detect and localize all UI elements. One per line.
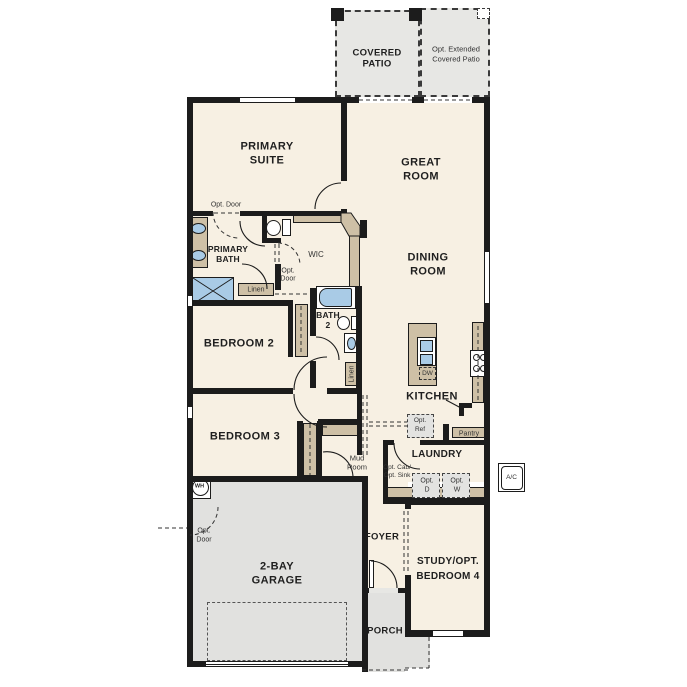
opt-patio-opening bbox=[424, 97, 472, 103]
opt-door-label: Opt. bbox=[197, 528, 210, 535]
window bbox=[240, 97, 295, 103]
window bbox=[433, 630, 463, 637]
dining-room-label: ROOM bbox=[410, 267, 446, 278]
wall bbox=[187, 97, 193, 667]
opt-door-label: Opt. Door bbox=[211, 202, 241, 209]
opt-dryer-label: D bbox=[424, 487, 429, 494]
covered-patio-label: PATIO bbox=[362, 59, 391, 69]
wall bbox=[187, 476, 368, 482]
tub-fixture bbox=[319, 288, 352, 307]
mud-room-label: Mud bbox=[350, 454, 365, 462]
garage-label: 2-BAY bbox=[260, 562, 294, 573]
foyer-label: FOYER bbox=[365, 532, 399, 542]
opt-wall-opening bbox=[405, 509, 411, 575]
wh-label: WH bbox=[195, 484, 204, 490]
primary-bath-label: BATH bbox=[216, 255, 240, 264]
great-room-label: ROOM bbox=[403, 172, 439, 183]
bedroom3-closet bbox=[303, 423, 317, 476]
bedroom3-label: BEDROOM 3 bbox=[210, 432, 280, 443]
patio-post bbox=[409, 8, 422, 21]
garage-door-line bbox=[206, 664, 348, 665]
kitchen-label: KITCHEN bbox=[406, 392, 458, 403]
window bbox=[187, 296, 193, 306]
study-label: STUDY/OPT. bbox=[417, 557, 479, 567]
stoop-area bbox=[405, 637, 430, 668]
dining-room-label: DINING bbox=[408, 253, 449, 264]
opt-extended-patio-label: Covered Patio bbox=[432, 55, 480, 63]
dishwasher-label: DW bbox=[422, 370, 433, 377]
sink-fixture bbox=[347, 337, 356, 350]
bath2-label: 2 bbox=[326, 321, 331, 330]
toilet-fixture bbox=[266, 220, 281, 236]
wall bbox=[317, 421, 322, 476]
wall bbox=[459, 403, 464, 416]
opt-ref-label: Opt. bbox=[414, 418, 426, 425]
wall bbox=[187, 211, 347, 216]
linen-label: Linen bbox=[247, 287, 264, 294]
wic-label: WIC bbox=[308, 251, 324, 259]
sink-fixture bbox=[191, 223, 206, 234]
opt-door-label: Door bbox=[196, 537, 211, 544]
patio-corner-notch bbox=[477, 8, 490, 19]
front-door-opening bbox=[369, 588, 398, 593]
burner bbox=[473, 365, 480, 372]
door-opening bbox=[293, 388, 327, 394]
pantry-label: Pantry bbox=[459, 431, 479, 438]
door-opening bbox=[310, 336, 316, 361]
wall bbox=[187, 388, 293, 394]
covered-patio-label: COVERED bbox=[352, 48, 401, 58]
great-room-label: GREAT bbox=[401, 158, 441, 169]
toilet-tank bbox=[282, 219, 291, 236]
wall bbox=[187, 300, 290, 306]
wall bbox=[356, 286, 362, 392]
bath2-label: BATH bbox=[316, 311, 340, 320]
floor-plan: COVERED PATIO Opt. Extended Covered Pati… bbox=[0, 0, 687, 687]
study-label: BEDROOM 4 bbox=[416, 572, 479, 582]
door-opening bbox=[341, 181, 347, 209]
opt-door-label: Door bbox=[280, 276, 295, 283]
wall bbox=[360, 220, 367, 238]
ac-label: A/C bbox=[506, 474, 517, 481]
patio-post bbox=[331, 8, 344, 21]
garage-label: GARAGE bbox=[252, 576, 303, 587]
wall bbox=[318, 419, 362, 424]
wall bbox=[267, 238, 281, 243]
mud-room-label: Room bbox=[347, 463, 367, 471]
wic-wall bbox=[349, 234, 360, 292]
opt-washer-label: Opt. bbox=[450, 478, 463, 485]
opt-extended-patio-label: Opt. Extended bbox=[432, 45, 480, 53]
wall bbox=[405, 500, 490, 505]
linen-label: Linen bbox=[348, 365, 355, 382]
sink-basin bbox=[420, 354, 433, 365]
primary-suite-label: SUITE bbox=[250, 156, 284, 167]
sink-fixture bbox=[191, 250, 206, 261]
bedroom2-closet bbox=[295, 304, 308, 357]
patio-sliding-opening bbox=[359, 97, 412, 103]
door-opening bbox=[394, 440, 420, 445]
burner bbox=[473, 354, 480, 361]
primary-bath-label: PRIMARY bbox=[208, 245, 248, 254]
sink-basin bbox=[420, 340, 433, 352]
opt-door-label: Opt. bbox=[281, 268, 294, 275]
wall bbox=[362, 482, 368, 672]
bedroom2-label: BEDROOM 2 bbox=[204, 339, 274, 350]
wall bbox=[443, 424, 449, 440]
window bbox=[187, 407, 193, 418]
opt-cab-sink-label: Opt. Sink bbox=[384, 473, 411, 480]
wall bbox=[297, 421, 303, 476]
wall bbox=[484, 97, 490, 637]
opt-door-opening bbox=[213, 211, 240, 216]
opt-dryer-label: Opt. bbox=[420, 478, 433, 485]
garage-door-clearance bbox=[207, 602, 347, 661]
opt-cab-sink-label: Opt. Cab/ bbox=[383, 465, 411, 472]
opt-washer-label: W bbox=[454, 487, 461, 494]
primary-suite-label: PRIMARY bbox=[240, 142, 293, 153]
opt-ref-label: Ref bbox=[415, 427, 425, 434]
porch-label: PORCH bbox=[367, 626, 403, 636]
laundry-label: LAUNDRY bbox=[412, 450, 463, 460]
front-door-slab bbox=[369, 560, 374, 588]
window bbox=[484, 252, 490, 303]
mudroom-bench bbox=[322, 424, 360, 436]
wall bbox=[288, 300, 293, 357]
